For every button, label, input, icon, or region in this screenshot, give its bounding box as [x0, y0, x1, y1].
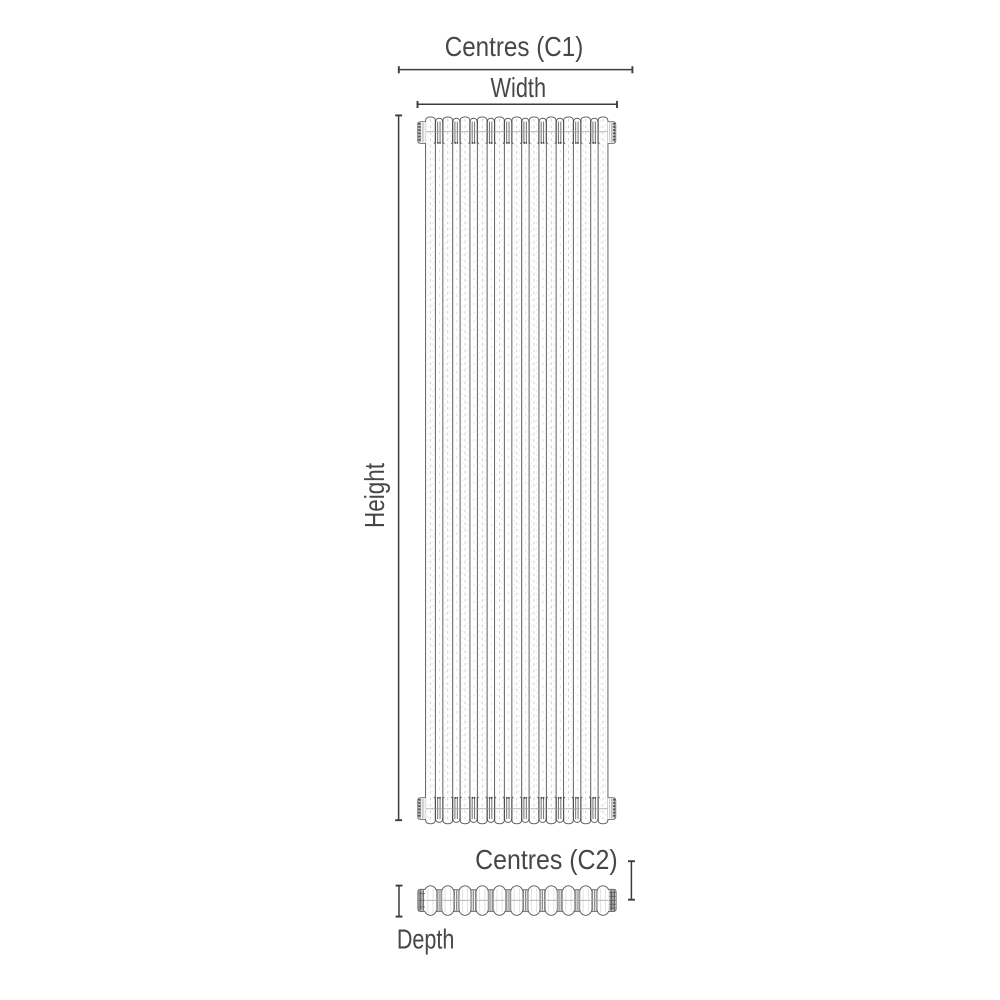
svg-text:Centres (C2): Centres (C2) — [475, 844, 618, 875]
svg-text:Width: Width — [491, 72, 547, 103]
svg-text:Depth: Depth — [397, 924, 455, 955]
svg-text:Centres (C1): Centres (C1) — [445, 31, 584, 62]
svg-text:Height: Height — [359, 463, 390, 528]
